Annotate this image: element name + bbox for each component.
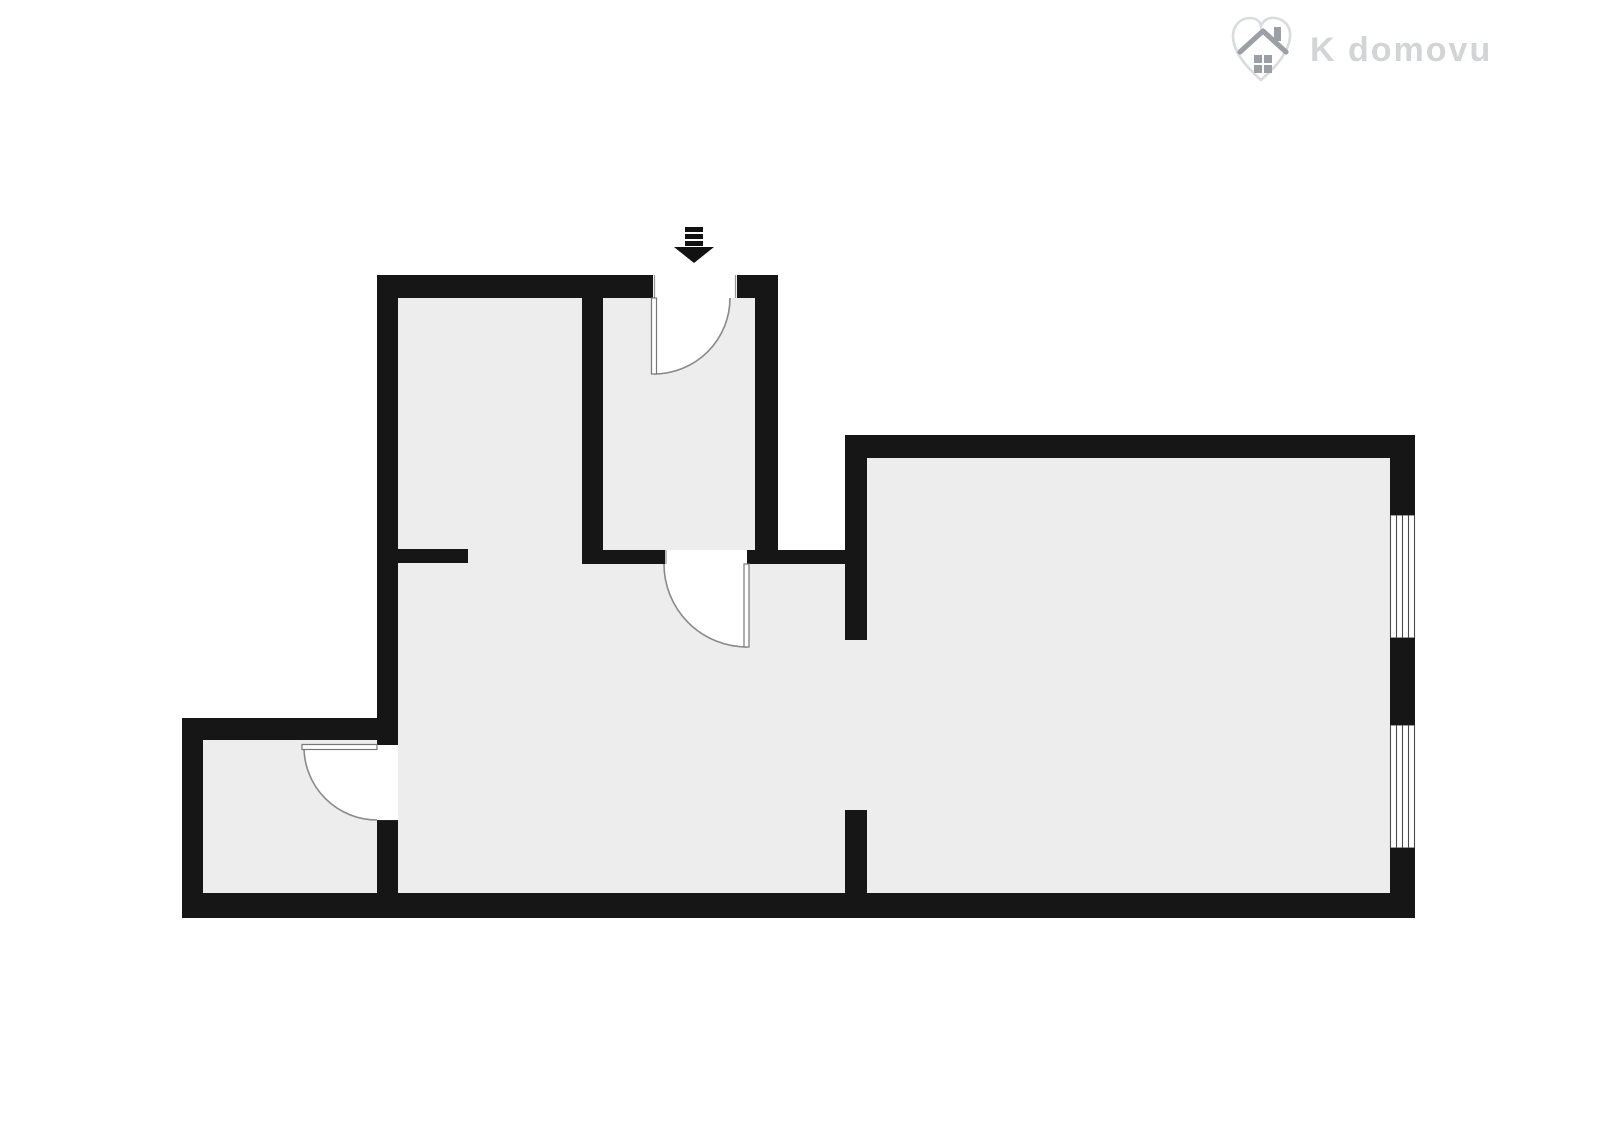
- wall-bottom: [182, 893, 1415, 918]
- entrance-arrow-bar: [685, 234, 703, 239]
- wall-hall-bottom-right: [747, 550, 867, 564]
- entrance-arrow-bar: [685, 241, 703, 246]
- floor-top-left-room: [398, 298, 582, 563]
- house-window-pane: [1254, 55, 1262, 63]
- floor-living-area: [398, 563, 845, 893]
- brand-logo: K domovu: [1230, 14, 1492, 86]
- wall-right-between-wins: [1390, 638, 1415, 725]
- hall-door-leaf: [744, 564, 749, 647]
- wall-top-left: [377, 275, 653, 298]
- window-2: [1390, 725, 1415, 848]
- wall-divider-lower: [845, 810, 867, 893]
- floor-room-opening: [845, 640, 867, 810]
- house-window: [1254, 55, 1272, 73]
- entrance-arrow-bar: [685, 227, 703, 232]
- wall-right-above-win1: [1390, 435, 1415, 515]
- heart-house-icon: [1230, 14, 1294, 86]
- hall-door-gap: [665, 550, 747, 564]
- wall-left-lower: [377, 820, 398, 893]
- floor-right-room: [867, 458, 1390, 893]
- entrance-arrow-icon: [674, 227, 714, 263]
- wall-small-room-left: [182, 718, 203, 918]
- floor-plan: [0, 0, 1600, 1131]
- wall-right-below-win2: [1390, 848, 1415, 918]
- house-window-pane: [1264, 65, 1272, 73]
- wall-stub-left: [377, 549, 468, 563]
- window-1: [1390, 515, 1415, 638]
- house-window-pane: [1254, 65, 1262, 73]
- brand-name: K domovu: [1310, 33, 1492, 67]
- house-window-pane: [1264, 55, 1272, 63]
- wall-right-room-top: [845, 435, 1415, 458]
- wall-small-room-top: [182, 718, 398, 740]
- page: K domovu: [0, 0, 1600, 1131]
- wall-hall-right: [755, 275, 778, 564]
- entrance-arrow-head: [674, 247, 714, 263]
- wall-left-upper: [377, 275, 398, 745]
- entrance-door-gap: [653, 275, 737, 298]
- entrance-door-leaf: [652, 298, 657, 374]
- wall-divider-upper: [845, 435, 867, 640]
- wall-interior-vertical: [582, 275, 603, 563]
- small-room-door-leaf: [302, 745, 377, 750]
